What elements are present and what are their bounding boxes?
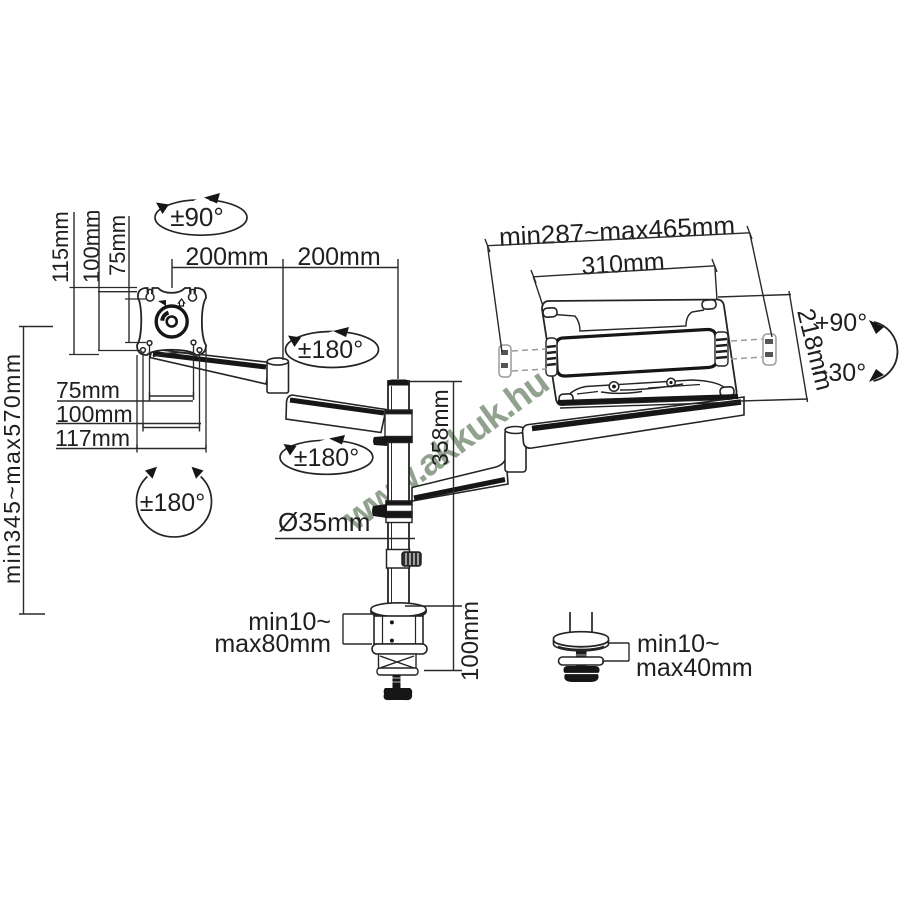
svg-text:115mm: 115mm: [48, 211, 73, 283]
svg-text:358mm: 358mm: [427, 389, 453, 466]
svg-text:min345~max570mm: min345~max570mm: [0, 352, 25, 584]
svg-text:+90°: +90°: [815, 309, 867, 337]
svg-text:75mm: 75mm: [56, 377, 120, 403]
svg-text:75mm: 75mm: [105, 215, 130, 276]
svg-text:±180°: ±180°: [294, 444, 359, 472]
svg-text:max40mm: max40mm: [636, 654, 753, 682]
svg-text:±90°: ±90°: [170, 202, 224, 232]
svg-text:−30°: −30°: [814, 359, 866, 387]
svg-text:Ø35mm: Ø35mm: [278, 507, 370, 537]
svg-text:100mm: 100mm: [79, 210, 104, 283]
svg-text:±180°: ±180°: [298, 336, 363, 364]
svg-text:max80mm: max80mm: [214, 630, 331, 658]
svg-text:310mm: 310mm: [581, 247, 666, 280]
svg-text:117mm: 117mm: [55, 425, 130, 451]
svg-text:100mm: 100mm: [457, 601, 484, 681]
svg-text:±180°: ±180°: [140, 489, 205, 517]
